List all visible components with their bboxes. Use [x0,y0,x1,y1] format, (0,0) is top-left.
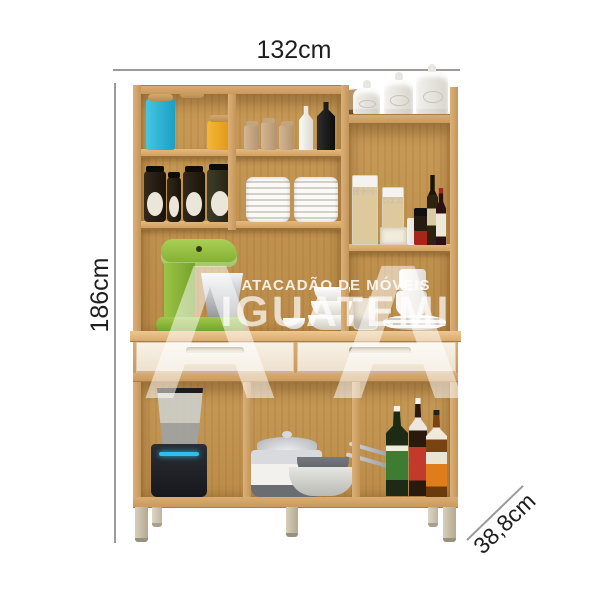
hutch-top-board [133,85,345,94]
stand-mixer-column [164,263,195,321]
plate-stack [246,177,290,222]
height-dimension-label: 186cm [86,253,114,337]
pasta-box [380,227,407,245]
cup [396,291,427,316]
hutch-divider-right [341,85,349,332]
drawer-left-handle [186,347,244,354]
right-column-shelf-board [349,244,450,253]
height-dimension-line [114,83,116,543]
preserve-jar [144,171,166,222]
cereal-dispenser [352,175,378,245]
depth-dimension-label: 38,8cm [452,472,558,576]
product-dimension-diagram: 132cm 186cm 38,8cm [0,0,600,600]
counter-top [130,331,461,342]
hutch-divider-left [228,94,236,230]
preserve-jar [183,171,205,222]
base-divider-right [352,382,360,497]
plate-stack [294,177,338,222]
stand-mixer-head-dot [196,246,202,252]
cabinet-leg [443,507,456,542]
ceramic-canister [416,72,448,115]
preserve-jar [167,177,181,222]
saucer-stack [383,315,446,330]
ceramic-canister [384,80,413,115]
spice-jar [279,125,294,150]
cabinet-leg [286,507,298,537]
upper-shelf-board [141,149,341,158]
small-dark-bottle [414,208,428,245]
glass-tumbler [353,298,378,330]
drawer-rail [133,373,458,382]
cup [399,269,426,292]
right-column-top-board [349,114,458,123]
hutch-left-side-panel [133,85,141,332]
width-dimension-line [113,69,460,71]
lower-shelf-board [141,221,341,230]
blender-jar [157,388,203,446]
spice-jar [244,125,259,150]
cabinet-leg [152,507,162,527]
cabinet-leg [428,507,438,527]
ceramic-canister [353,88,380,115]
blender-display [159,452,199,456]
right-column-side-panel [450,87,458,332]
base-right-side-panel [450,382,458,497]
green-canister [178,96,206,150]
blue-canister [146,99,175,150]
base-left-side-panel [133,382,141,497]
cabinet-leg [135,507,148,542]
width-dimension-label: 132cm [234,36,354,65]
drawer-right-handle [349,347,411,354]
base-divider-left [243,382,251,497]
pot-lid-knob [282,431,292,438]
spice-jar [261,122,277,150]
